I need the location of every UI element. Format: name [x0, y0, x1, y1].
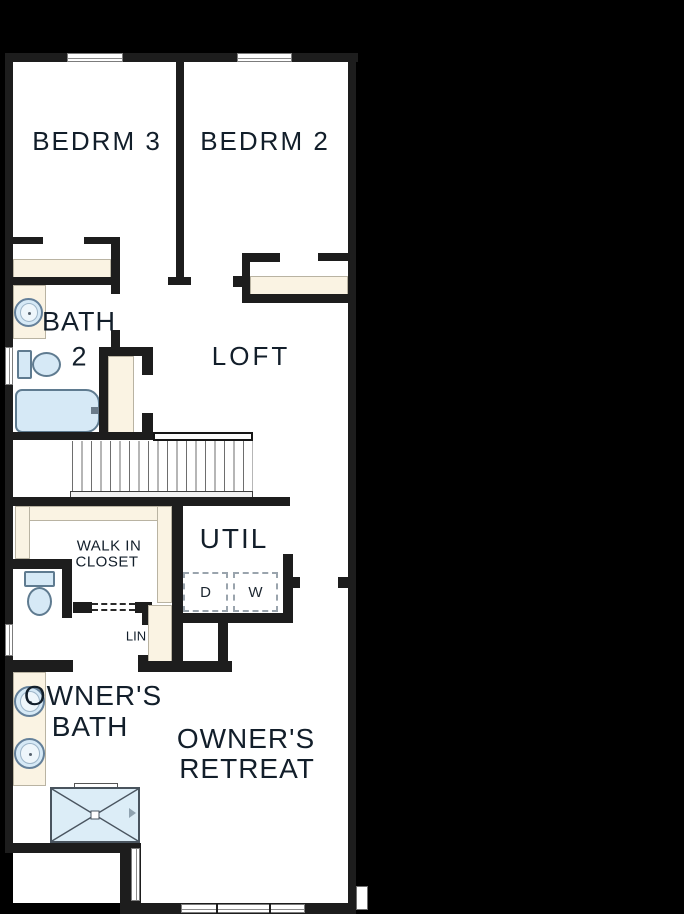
stair-rail — [153, 432, 253, 441]
linen-shelf — [148, 605, 172, 663]
window-mullion — [216, 904, 218, 913]
window — [67, 53, 123, 62]
window — [131, 848, 140, 901]
wall-door-jamb — [73, 602, 92, 613]
label-owners-bath-1: OWNER'S — [24, 680, 162, 712]
label-owners-bath-2: BATH — [52, 711, 129, 743]
shower — [50, 787, 140, 843]
closet-shelf — [15, 506, 30, 559]
stairs — [72, 441, 253, 491]
wall-closet3 — [13, 277, 111, 285]
wall-closet3 — [13, 237, 43, 244]
wall-tick — [233, 276, 242, 287]
wall-ob-north — [13, 660, 73, 672]
closet-shelf — [15, 506, 172, 521]
wall-wc — [62, 559, 72, 618]
wall-divider-cap — [168, 277, 191, 285]
label-bath2-number: 2 — [71, 341, 86, 372]
label-bedrm3: BEDRM 3 — [32, 127, 162, 157]
label-walkin-2: CLOSET — [75, 553, 138, 570]
toilet-bowl — [27, 587, 52, 616]
floor-plan-canvas: D W BEDRM 3 BEDRM 2 BATH 2 LOFT WALK IN — [0, 0, 684, 914]
toilet-tank — [24, 571, 55, 587]
wall-closet2 — [242, 294, 348, 303]
wall-door-jamb — [338, 577, 348, 588]
washer-box: W — [233, 572, 278, 612]
wall-mid — [13, 497, 290, 506]
label-walkin-1: WALK IN — [77, 537, 142, 554]
bathtub — [15, 389, 100, 433]
wall-hallcloset — [99, 347, 108, 437]
wall-closet2 — [318, 253, 348, 261]
wall-hall-bottom — [148, 661, 232, 672]
door-swing-icon — [129, 808, 136, 818]
wall-hall — [138, 655, 148, 672]
window — [181, 904, 305, 913]
wall-ob-south — [5, 843, 125, 853]
closet-shelf — [157, 506, 172, 603]
wall-stair-top — [5, 432, 153, 440]
wall-closet3 — [111, 237, 120, 294]
label-loft: LOFT — [212, 342, 290, 372]
window — [5, 624, 13, 656]
sliding-door — [92, 603, 135, 605]
wall-wic-util — [172, 506, 183, 664]
label-lin: LIN — [126, 630, 146, 645]
label-bath2: BATH — [42, 306, 116, 337]
washer-label: W — [248, 584, 262, 601]
label-bedrm2: BEDRM 2 — [200, 127, 330, 157]
closet-shelf — [108, 356, 134, 434]
wall-left — [5, 53, 13, 853]
dryer-label: D — [200, 584, 211, 601]
wall-niche — [218, 623, 228, 665]
window-mullion — [269, 904, 271, 913]
dryer-box: D — [183, 572, 228, 612]
closet-shelf — [13, 259, 111, 278]
wall-door-jamb — [293, 577, 300, 588]
wall-hallcloset — [142, 347, 153, 375]
closet-shelf — [250, 276, 348, 295]
wall-right — [348, 53, 356, 913]
wall-bedroom-divider — [176, 62, 184, 278]
window — [5, 347, 13, 385]
toilet-bowl — [32, 352, 61, 377]
sink — [14, 738, 45, 769]
wall-top — [5, 53, 358, 62]
toilet-tank — [17, 350, 32, 379]
label-owners-retreat-2: RETREAT — [179, 753, 315, 785]
wall-util-right — [283, 554, 293, 622]
window — [237, 53, 292, 62]
label-owners-retreat-1: OWNER'S — [177, 723, 315, 755]
wall-notch — [356, 886, 368, 910]
sliding-door — [92, 609, 135, 611]
wall-util-bottom — [175, 613, 293, 623]
sink — [14, 298, 43, 327]
label-util: UTIL — [200, 523, 269, 555]
